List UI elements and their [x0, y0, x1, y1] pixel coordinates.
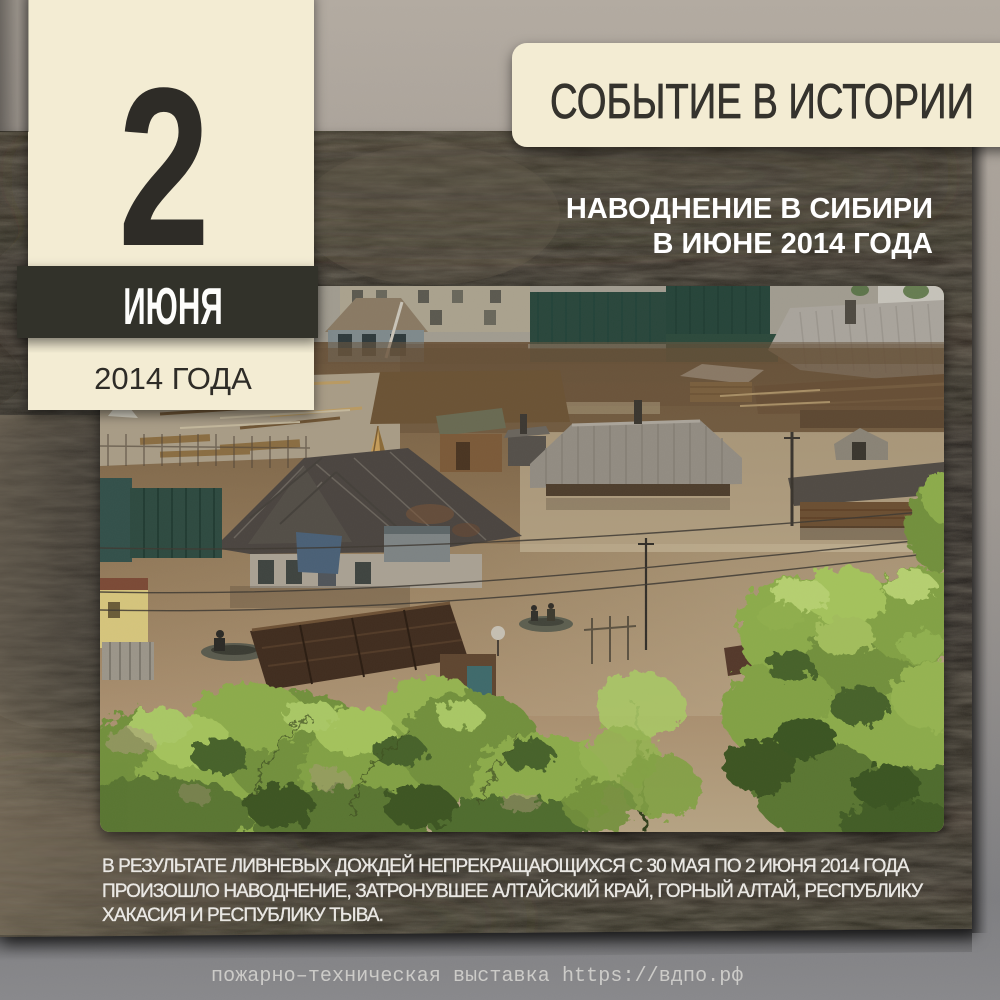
- svg-text:2: 2: [118, 41, 210, 293]
- svg-text:СОБЫТИЕ В ИСТОРИИ: СОБЫТИЕ В ИСТОРИИ: [550, 75, 974, 130]
- svg-text:пожарно–техническая выставка h: пожарно–техническая выставка https://вдп…: [211, 965, 744, 988]
- svg-text:ИЮНЯ: ИЮНЯ: [123, 278, 223, 336]
- svg-text:В РЕЗУЛЬТАТЕ ЛИВНЕВЫХ ДОЖДЕЙ Н: В РЕЗУЛЬТАТЕ ЛИВНЕВЫХ ДОЖДЕЙ НЕПРЕКРАЩАЮ…: [102, 855, 910, 877]
- svg-text:ХАКАСИЯ И РЕСПУБЛИКУ ТЫВА.: ХАКАСИЯ И РЕСПУБЛИКУ ТЫВА.: [102, 905, 383, 926]
- svg-text:НАВОДНЕНИЕ В СИБИРИ: НАВОДНЕНИЕ В СИБИРИ: [566, 193, 933, 225]
- svg-text:ПРОИЗОШЛО НАВОДНЕНИЕ, ЗАТРОНУВ: ПРОИЗОШЛО НАВОДНЕНИЕ, ЗАТРОНУВШЕЕ АЛТАЙС…: [102, 880, 924, 902]
- svg-text:2014 ГОДА: 2014 ГОДА: [94, 361, 252, 396]
- svg-text:В ИЮНЕ 2014 ГОДА: В ИЮНЕ 2014 ГОДА: [653, 228, 934, 260]
